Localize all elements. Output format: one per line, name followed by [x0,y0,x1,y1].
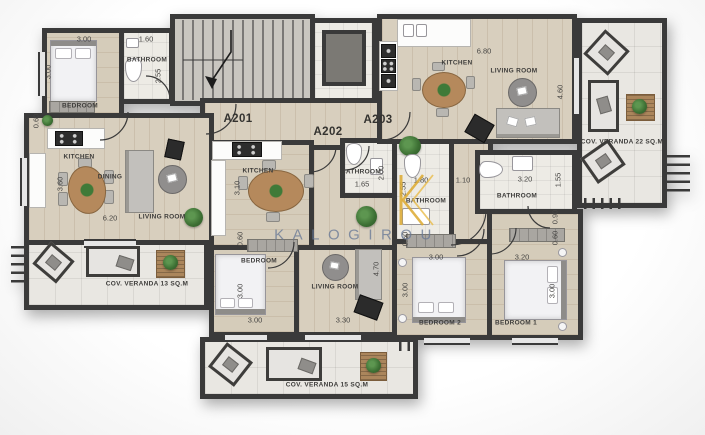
dimension-label: 3.00 [77,35,92,44]
dimension-label: 3.30 [336,316,351,325]
room-label: LIVING ROOM [139,214,186,221]
dimension-label: 3.60 [56,177,65,192]
room-label: BEDROOM [62,103,98,110]
dimension-label: 2.55 [154,69,163,84]
dimension-label: 3.20 [518,175,533,184]
dimension-label: 1.65 [355,180,370,189]
apartment-label: A201 [223,113,252,125]
dimension-label: 3.00 [236,284,245,299]
floor-plan-page: { "watermark": { "logo_letter": "K", "te… [0,0,705,435]
room-label: LIVING ROOM [312,284,359,291]
dimension-label: 3.00 [548,284,557,299]
dimension-label: 0.90 [551,210,560,225]
dimension-label: 1.60 [139,35,154,44]
dimension-label: 3.00 [44,65,53,80]
room-label: COV. VERANDA 15 SQ.M [286,382,368,389]
room-label: LIVING ROOM [491,68,538,75]
room-label: DINING [98,174,123,181]
apartment-label: A203 [363,114,392,126]
room-label: BATHROOM [127,57,167,64]
room-label: KITCHEN [243,168,274,175]
kalogirou-logo-icon [389,170,437,235]
dimension-label: 0.60 [551,231,560,246]
labels-layer: A201A202A203BEDROOMBATHROOMKITCHENDINING… [0,0,705,435]
dimension-label: 0.60 [236,232,245,247]
room-label: BEDROOM [241,258,277,265]
room-label: BATHROOM [341,169,381,176]
dimension-label: 1.10 [456,176,471,185]
room-label: BEDROOM 1 [495,320,537,327]
room-label: BEDROOM 2 [419,320,461,327]
dimension-label: 6.20 [103,214,118,223]
dimension-label: 3.10 [233,181,242,196]
room-label: KITCHEN [442,60,473,67]
room-label: COV. VERANDA 13 SQ.M [106,281,188,288]
dimension-label: 4.70 [372,262,381,277]
dimension-label: 3.00 [429,253,444,262]
apartment-label: A202 [313,126,342,138]
room-label: COV. VERANDA 22 SQ.M [581,139,663,146]
floor-plan: A201A202A203BEDROOMBATHROOMKITCHENDINING… [0,0,705,435]
dimension-label: 4.60 [556,85,565,100]
dimension-label: 0.60 [32,114,41,129]
dimension-label: 1.55 [554,173,563,188]
dimension-label: 3.00 [401,283,410,298]
room-label: BATHROOM [497,193,537,200]
watermark-brand-text: KALOGIROU [274,227,440,244]
dimension-label: 6.80 [477,47,492,56]
dimension-label: 3.00 [248,316,263,325]
dimension-label: 3.20 [515,253,530,262]
room-label: KITCHEN [64,154,95,161]
dimension-label: 2.00 [377,166,386,181]
